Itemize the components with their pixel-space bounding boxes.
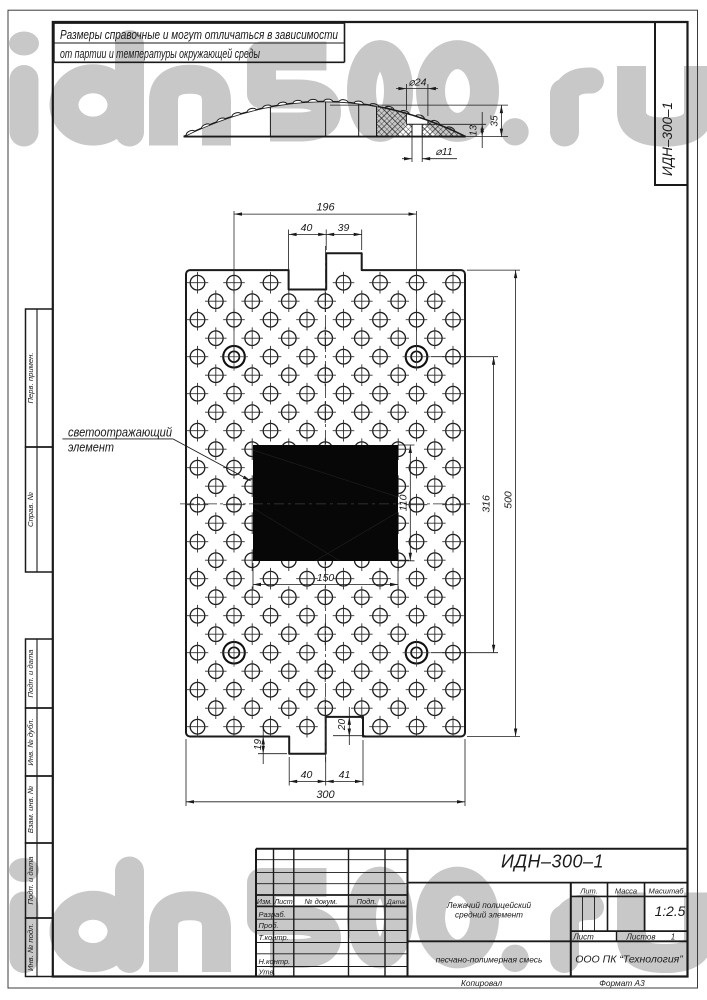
svg-text:Взам. инв. №: Взам. инв. № bbox=[26, 786, 35, 834]
svg-text:Формат А3: Формат А3 bbox=[599, 978, 645, 988]
svg-text:№ докум.: № докум. bbox=[304, 897, 337, 906]
svg-text:Копировал: Копировал bbox=[461, 978, 503, 988]
svg-text:Дата: Дата bbox=[386, 899, 405, 906]
svg-text:Лежачий полицейский: Лежачий полицейский bbox=[446, 901, 532, 910]
svg-text:Подп. и дата: Подп. и дата bbox=[26, 649, 35, 698]
svg-text:40: 40 bbox=[301, 222, 313, 234]
svg-text:Подп.: Подп. bbox=[357, 897, 377, 906]
svg-text:150: 150 bbox=[317, 572, 335, 584]
svg-text:элемент: элемент bbox=[68, 441, 114, 455]
svg-text:от партии и температуры окружа: от партии и температуры окружающей среды bbox=[60, 46, 260, 61]
svg-text:ИДН–300–1: ИДН–300–1 bbox=[501, 852, 604, 872]
svg-text:13: 13 bbox=[468, 125, 479, 137]
svg-text:песчано-полимерная смесь: песчано-полимерная смесь bbox=[436, 955, 543, 965]
svg-text:⌀24: ⌀24 bbox=[408, 76, 426, 88]
svg-text:Разраб.: Разраб. bbox=[259, 910, 286, 919]
svg-text:41: 41 bbox=[339, 769, 351, 781]
svg-text:светоотражающий: светоотражающий bbox=[68, 425, 172, 439]
svg-text:средний элемент: средний элемент bbox=[455, 911, 523, 920]
svg-text:Листов: Листов bbox=[625, 932, 655, 941]
svg-text:1:2.5: 1:2.5 bbox=[655, 904, 686, 919]
svg-text:40: 40 bbox=[301, 769, 313, 781]
svg-text:Размеры справочные и могут отл: Размеры справочные и могут отличаться в … bbox=[60, 27, 338, 42]
svg-text:39: 39 bbox=[338, 222, 350, 234]
svg-text:Изм.: Изм. bbox=[257, 897, 272, 906]
svg-text:Проб.: Проб. bbox=[259, 921, 279, 930]
svg-text:Лит.: Лит. bbox=[579, 887, 598, 896]
svg-text:Лист: Лист bbox=[572, 932, 594, 941]
svg-text:110: 110 bbox=[398, 494, 410, 511]
svg-text:500: 500 bbox=[503, 491, 515, 509]
svg-text:316: 316 bbox=[481, 495, 493, 513]
svg-text:ИДН–300–1: ИДН–300–1 bbox=[660, 102, 675, 176]
svg-text:20: 20 bbox=[337, 719, 348, 732]
svg-text:300: 300 bbox=[316, 789, 335, 801]
svg-text:Перв. примен.: Перв. примен. bbox=[26, 352, 35, 403]
svg-text:Инв. № подл.: Инв. № подл. bbox=[26, 923, 35, 971]
svg-text:Лист: Лист bbox=[273, 897, 293, 906]
svg-text:Справ. №: Справ. № bbox=[26, 492, 35, 527]
svg-text:35: 35 bbox=[490, 115, 501, 127]
svg-text:Н.контр.: Н.контр. bbox=[259, 957, 291, 966]
svg-text:Т.контр.: Т.контр. bbox=[259, 933, 289, 942]
svg-text:19: 19 bbox=[253, 739, 264, 751]
svg-text:1: 1 bbox=[671, 932, 675, 941]
svg-text:⌀11: ⌀11 bbox=[435, 146, 452, 158]
svg-text:ООО ПК “Технология”: ООО ПК “Технология” bbox=[575, 954, 683, 966]
svg-text:Утв.: Утв. bbox=[258, 967, 276, 976]
svg-text:Подп. и дата: Подп. и дата bbox=[26, 856, 35, 905]
svg-text:Масштаб: Масштаб bbox=[648, 887, 684, 896]
svg-text:Инв. № дубл.: Инв. № дубл. bbox=[26, 718, 35, 765]
svg-text:Масса: Масса bbox=[615, 887, 637, 896]
svg-text:196: 196 bbox=[316, 202, 335, 214]
